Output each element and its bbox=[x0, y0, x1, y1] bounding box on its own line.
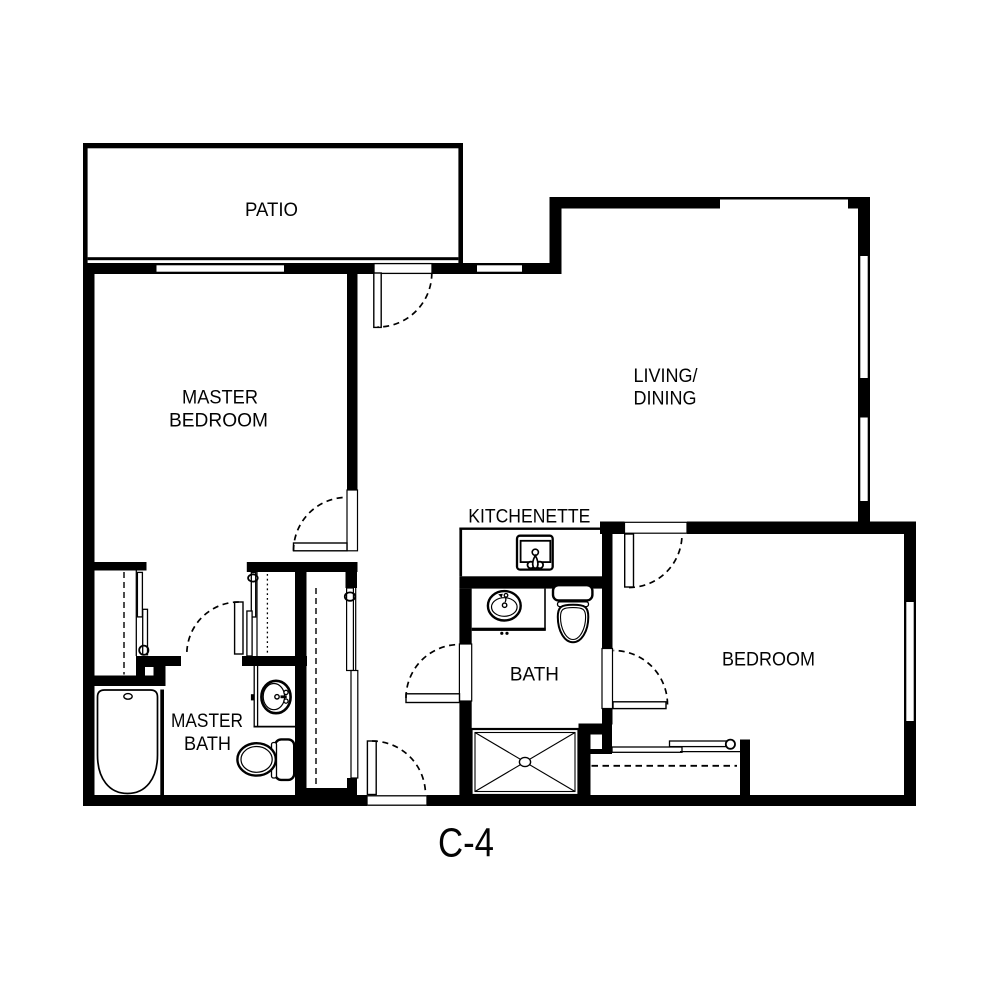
svg-text:C-4: C-4 bbox=[438, 819, 494, 865]
svg-text:PATIO: PATIO bbox=[245, 199, 298, 221]
svg-text:DINING: DINING bbox=[634, 387, 697, 409]
svg-text:BATH: BATH bbox=[184, 733, 231, 755]
svg-text:KITCHENETTE: KITCHENETTE bbox=[468, 505, 590, 527]
svg-text:BATH: BATH bbox=[510, 664, 559, 686]
svg-text:MASTER: MASTER bbox=[182, 386, 258, 408]
svg-text:BEDROOM: BEDROOM bbox=[722, 649, 815, 671]
svg-text:LIVING/: LIVING/ bbox=[634, 365, 699, 387]
svg-text:MASTER: MASTER bbox=[171, 710, 243, 732]
svg-text:BEDROOM: BEDROOM bbox=[169, 410, 268, 432]
